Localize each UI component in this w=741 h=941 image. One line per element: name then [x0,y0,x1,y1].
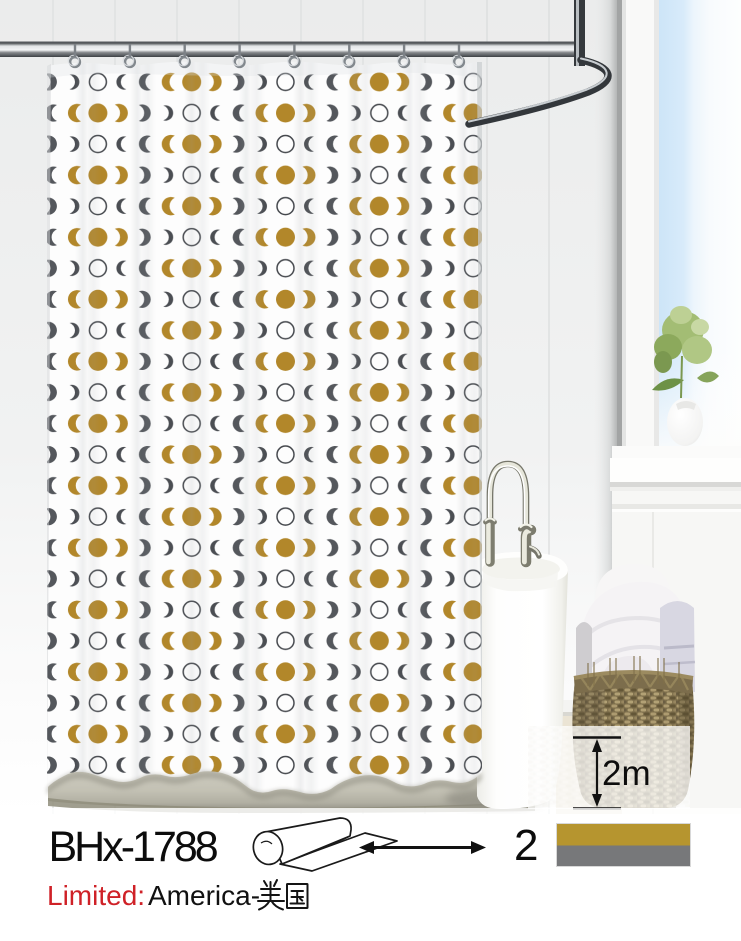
svg-text:Limited:: Limited: [47,880,145,911]
svg-text:America-: America- [148,880,260,911]
svg-text:2: 2 [514,821,538,870]
svg-text:2m: 2m [602,754,651,793]
svg-text:BHx-1788: BHx-1788 [49,823,218,871]
